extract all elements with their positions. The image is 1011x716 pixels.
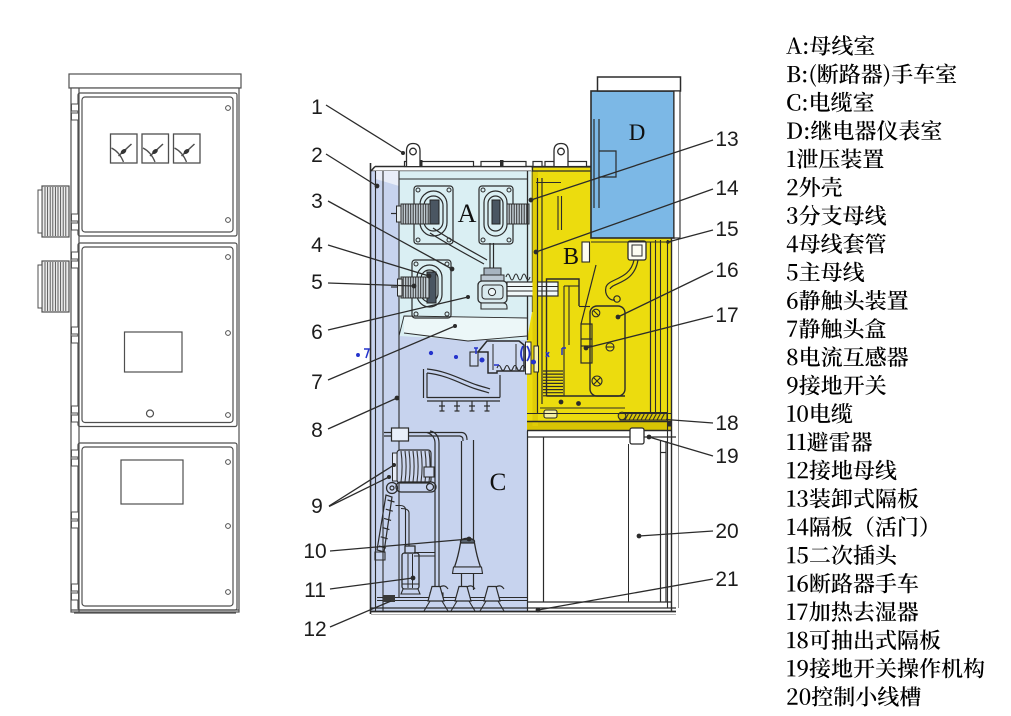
svg-text:18: 18 xyxy=(715,412,738,435)
svg-text:4: 4 xyxy=(311,234,323,257)
svg-text:8: 8 xyxy=(311,419,323,442)
svg-text:3: 3 xyxy=(311,190,323,213)
svg-text:14: 14 xyxy=(715,177,739,200)
svg-text:17: 17 xyxy=(715,304,738,327)
svg-text:7: 7 xyxy=(311,371,323,394)
svg-text:11: 11 xyxy=(304,579,326,602)
svg-text:9: 9 xyxy=(311,495,323,518)
svg-text:B: B xyxy=(563,244,579,270)
svg-text:20: 20 xyxy=(715,520,738,543)
svg-text:16: 16 xyxy=(715,259,738,282)
svg-text:A: A xyxy=(458,199,477,228)
svg-text:2: 2 xyxy=(311,144,323,167)
svg-text:19: 19 xyxy=(715,445,738,468)
svg-text:10: 10 xyxy=(303,540,326,563)
svg-text:6: 6 xyxy=(311,321,323,344)
svg-text:D: D xyxy=(629,120,646,145)
svg-text:5: 5 xyxy=(311,271,323,294)
svg-text:13: 13 xyxy=(715,128,738,151)
svg-text:12: 12 xyxy=(303,618,326,641)
svg-text:15: 15 xyxy=(715,218,738,241)
svg-text:1: 1 xyxy=(311,96,323,119)
svg-text:C: C xyxy=(490,469,507,496)
svg-text:21: 21 xyxy=(715,568,738,591)
